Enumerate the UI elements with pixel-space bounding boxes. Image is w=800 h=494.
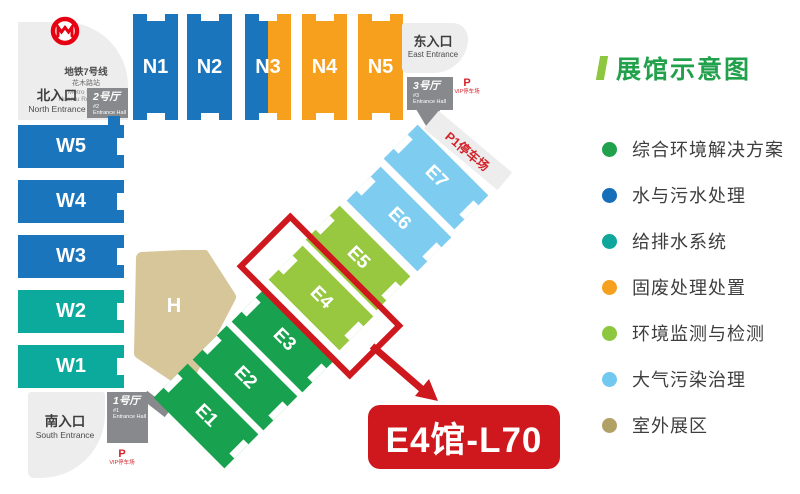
legend-dot-light-green (602, 326, 617, 341)
entrance-hall-1-zh: 1号厅 (113, 396, 148, 407)
legend-item-solid-waste: 固废处理处置 (602, 264, 784, 310)
entrance-hall-2: 2号厅 #2 Entrance Hall (87, 88, 128, 118)
hall-n3-water-half (245, 14, 268, 120)
hall-n1-label: N1 (143, 56, 169, 79)
hall-e3-label: E3 (268, 324, 300, 356)
legend-dot-orange (602, 280, 617, 295)
hall-w1-label: W1 (56, 355, 86, 378)
vip-parking-bottom-p-icon: P (107, 449, 137, 460)
legend-label: 固废处理处置 (632, 274, 746, 300)
north-entrance-en: North Entrance (20, 104, 94, 114)
legend-item-outdoor: 室外展区 (602, 402, 784, 448)
hall-n1: N1 (133, 14, 178, 120)
north-entrance-label: 北入口 North Entrance (20, 88, 94, 114)
hall-w4-label: W4 (56, 190, 86, 213)
entrance-hall-3-zh: 3号厅 (413, 81, 453, 92)
vip-parking-top-p-icon: P (452, 78, 482, 89)
hall-w2: W2 (18, 290, 124, 333)
hall-e6-label: E6 (383, 203, 415, 235)
legend-label: 水与污水处理 (632, 182, 746, 208)
legend-label: 综合环境解决方案 (632, 136, 784, 162)
entrance-hall-3: 3号厅 #3 Entrance Hall (407, 77, 453, 110)
hall-e7-label: E7 (420, 161, 452, 193)
hall-n2-label: N2 (197, 56, 223, 79)
hall-e2-label: E2 (229, 362, 261, 394)
hall-n3-solid-waste-half (268, 14, 291, 120)
hall-n3: N3 (245, 14, 291, 120)
south-entrance-label: 南入口 South Entrance (28, 414, 102, 440)
hall-w5: W5 (18, 125, 124, 168)
east-entrance-area: 东入口 East Entrance (402, 23, 468, 73)
entrance-hall-1: 1号厅 #1 Entrance Hall (107, 392, 148, 443)
legend-label: 环境监测与检测 (632, 320, 765, 346)
north-entrance-zh: 北入口 (20, 88, 94, 104)
metro-line-zh: 地铁7号线 (48, 68, 124, 78)
legend-dot-blue (602, 188, 617, 203)
hall-w2-label: W2 (56, 300, 86, 323)
hall-n2: N2 (187, 14, 232, 120)
legend-item-water: 水与污水处理 (602, 172, 784, 218)
booth-callout-label: E4馆-L70 (386, 412, 543, 463)
legend-item-monitoring: 环境监测与检测 (602, 310, 784, 356)
hall-n4-label: N4 (312, 56, 338, 79)
entrance-hall-2-zh: 2号厅 (93, 92, 128, 103)
legend-title-row: 展馆示意图 (598, 50, 751, 86)
legend-item-drainage: 给排水系统 (602, 218, 784, 264)
legend-dot-teal (602, 234, 617, 249)
hall-h-label: H (167, 295, 181, 317)
legend-label: 大气污染治理 (632, 366, 746, 392)
hall-w1: W1 (18, 345, 124, 388)
legend-dot-green (602, 142, 617, 157)
legend-title: 展馆示意图 (616, 50, 751, 86)
hall-w4: W4 (18, 180, 124, 223)
legend-item-solutions: 综合环境解决方案 (602, 126, 784, 172)
hall-e1-label: E1 (190, 400, 222, 432)
vip-parking-bottom-label: VIP停车场 (107, 461, 137, 467)
south-entrance-zh: 南入口 (28, 414, 102, 430)
vip-parking-top: P VIP停车场 (452, 78, 482, 96)
vip-parking-top-label: VIP停车场 (452, 90, 482, 96)
east-entrance-zh: 东入口 (402, 35, 464, 50)
legend-label: 给排水系统 (632, 228, 727, 254)
legend-dot-tan (602, 418, 617, 433)
hall-w3-label: W3 (56, 245, 86, 268)
south-entrance-en: South Entrance (28, 430, 102, 440)
booth-callout: E4馆-L70 (368, 405, 560, 469)
hall-w3: W3 (18, 235, 124, 278)
east-entrance-label: 东入口 East Entrance (402, 35, 464, 59)
entrance-hall-3-en: Entrance Hall (413, 100, 453, 106)
exhibition-map: 地铁7号线 花木路站 Metro Line 7 Huamu Rd. Statio… (0, 0, 800, 494)
hall-w5-label: W5 (56, 135, 86, 158)
vip-parking-bottom: P VIP停车场 (107, 449, 137, 467)
metro-logo-icon (50, 16, 80, 46)
east-entrance-en: East Entrance (402, 50, 464, 59)
south-entrance-area: 南入口 South Entrance (28, 392, 105, 478)
hall-n5: N5 (358, 14, 403, 120)
legend: 综合环境解决方案 水与污水处理 给排水系统 固废处理处置 环境监测与检测 大气污… (602, 126, 784, 448)
legend-dot-light-blue (602, 372, 617, 387)
hall-n4: N4 (302, 14, 347, 120)
entrance-hall-1-en: Entrance Hall (113, 415, 148, 421)
legend-item-air: 大气污染治理 (602, 356, 784, 402)
hall-n5-label: N5 (368, 56, 394, 79)
legend-label: 室外展区 (632, 412, 708, 438)
metro-station-zh: 花木路站 (48, 80, 124, 87)
legend-title-bar (596, 56, 608, 80)
